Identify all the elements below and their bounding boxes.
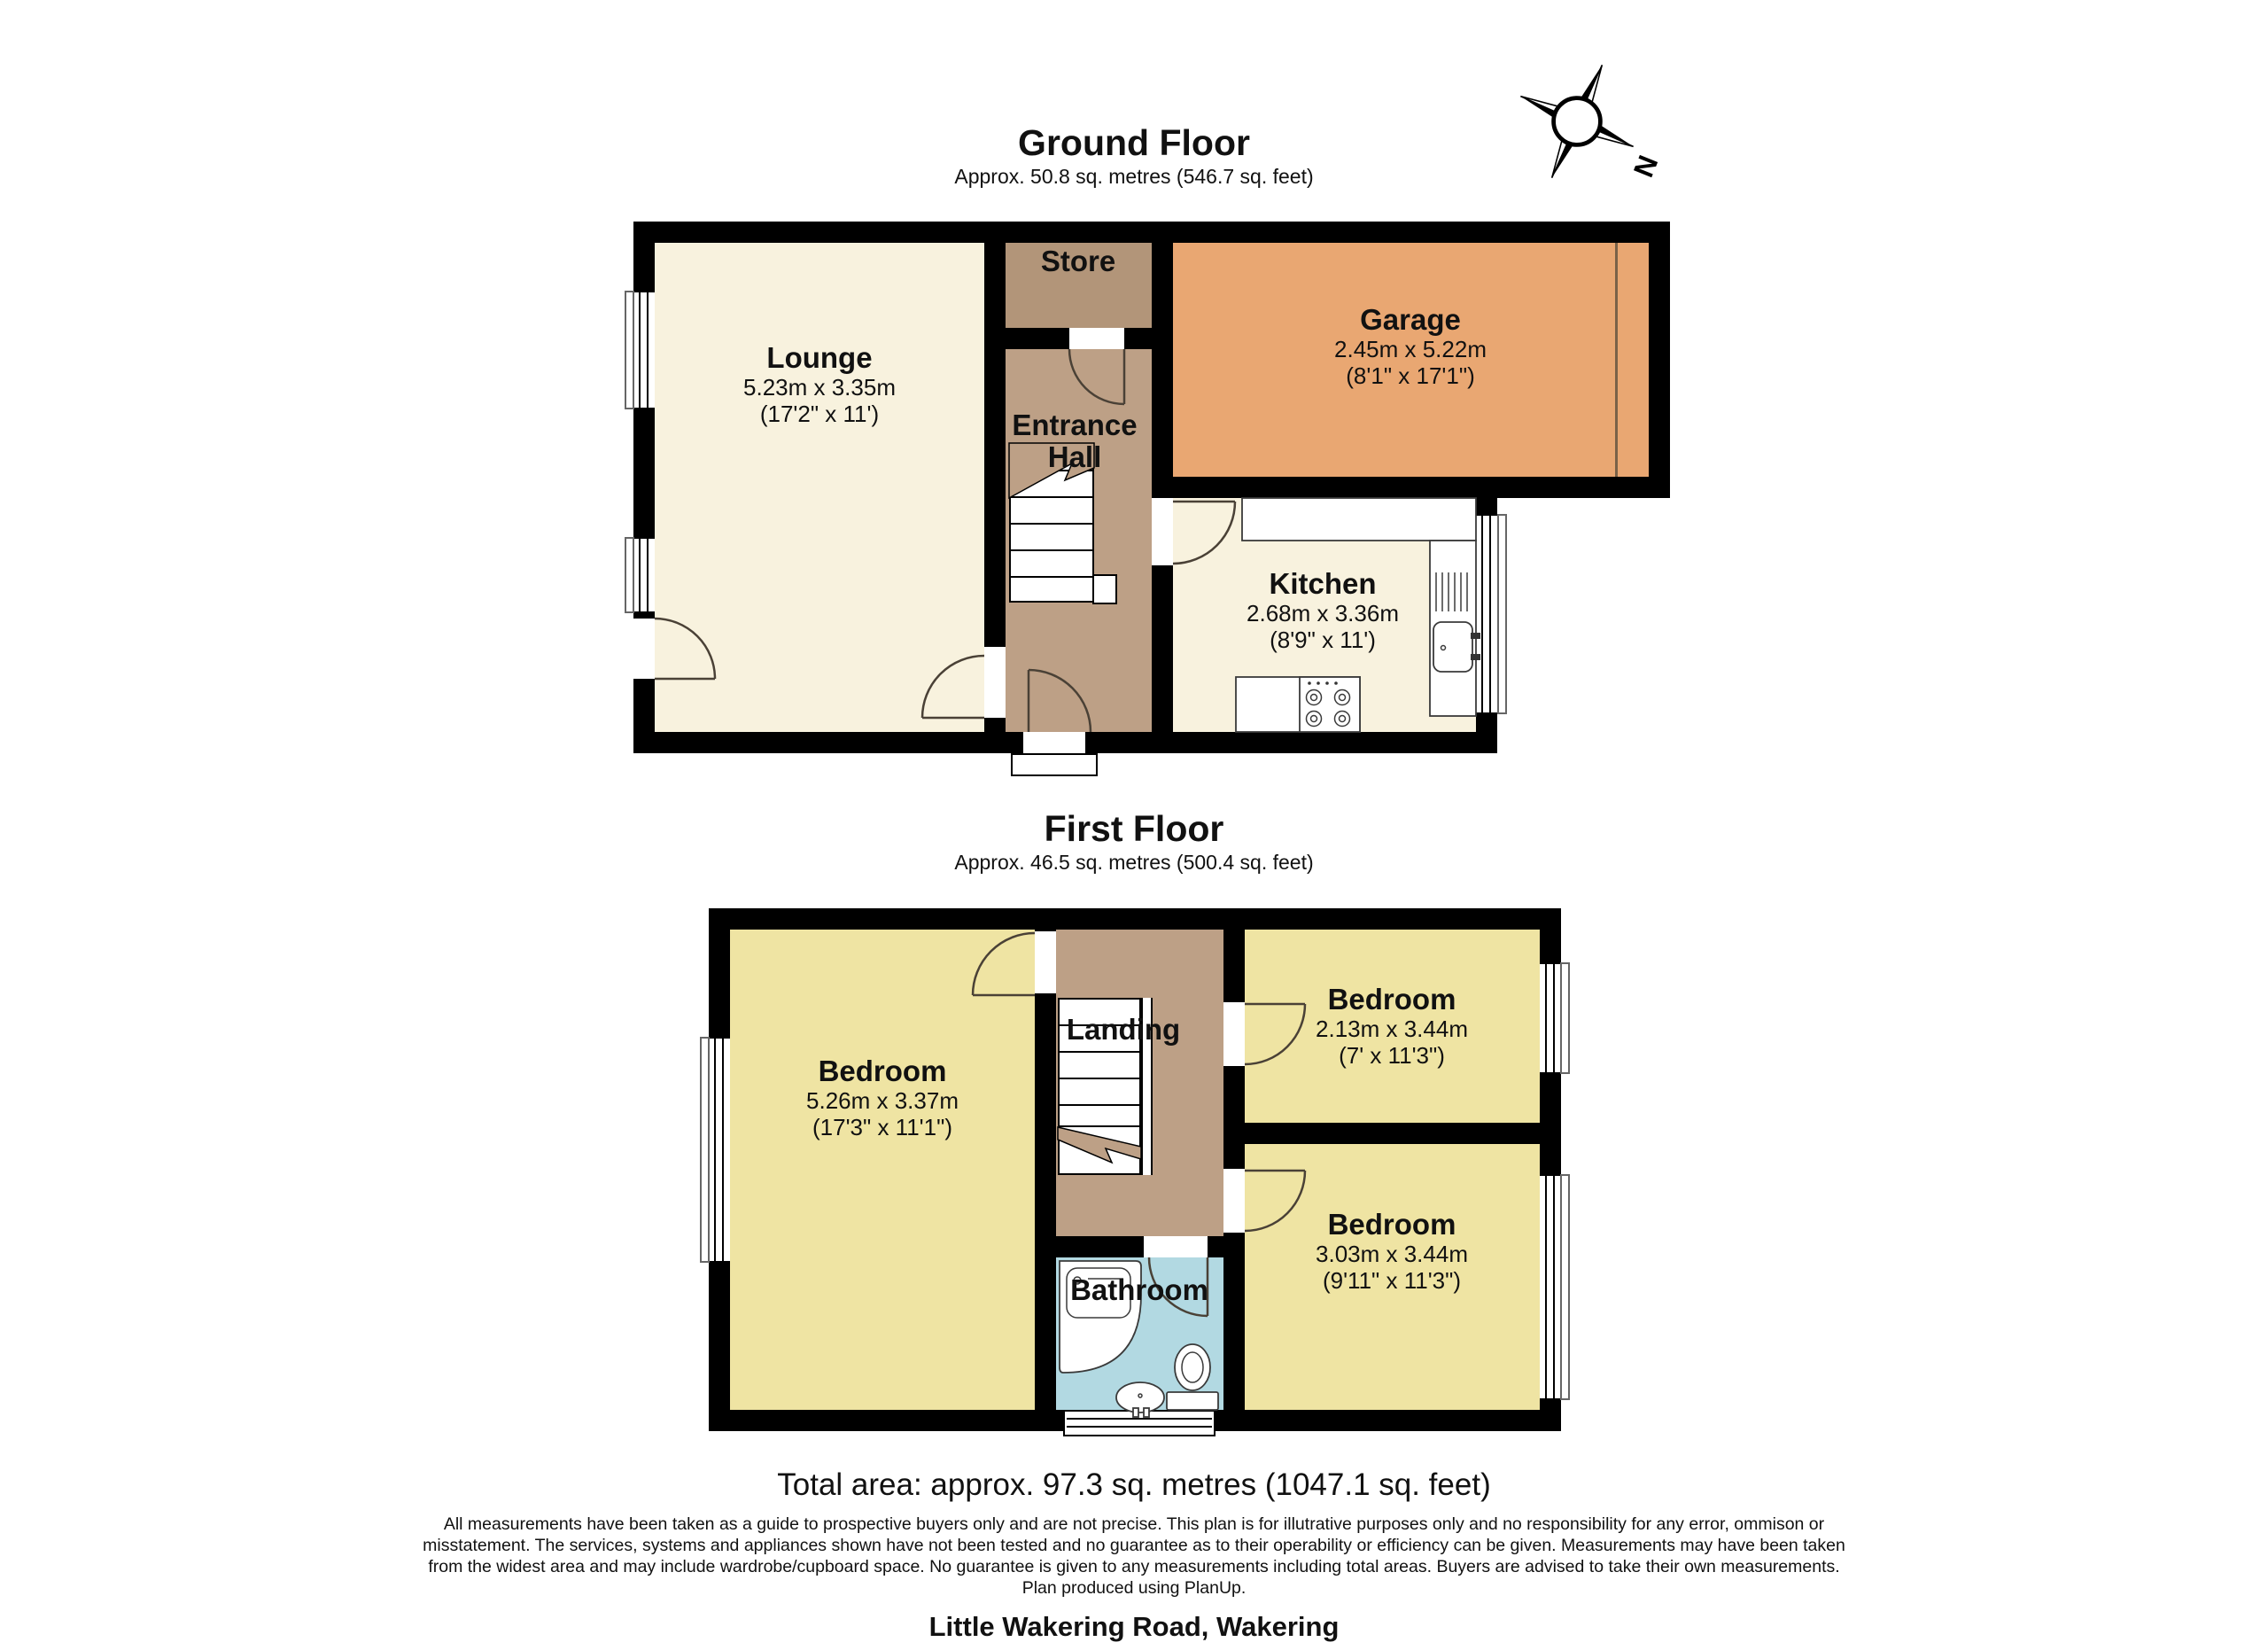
bedroom-top-right-door-arc	[1245, 1004, 1305, 1064]
compass-circle	[1554, 98, 1601, 145]
gf-overlay	[633, 222, 1670, 753]
kitchen-sink	[1433, 622, 1472, 672]
kitchen-dims-imperial: (8'9" x 11')	[1247, 627, 1399, 653]
bedroom-top-right-window-sill	[1560, 962, 1570, 1074]
lounge-name: Lounge	[743, 341, 896, 374]
bedroom-left-door-arc	[973, 933, 1035, 995]
bedroom-top-right-dims-metric: 2.13m x 3.44m	[1316, 1016, 1468, 1042]
garage-dims-imperial: (8'1" x 17'1")	[1334, 362, 1487, 389]
bedroom-top-right-name: Bedroom	[1316, 983, 1468, 1016]
ground-floor-subtitle: Approx. 50.8 sq. metres (546.7 sq. feet)	[954, 165, 1313, 189]
first-floor-title: First Floor	[1045, 808, 1224, 850]
bathroom-label: Bathroom	[1070, 1273, 1208, 1306]
store-name: Store	[1041, 245, 1115, 277]
disclaimer-line-4: Plan produced using PlanUp.	[0, 1577, 2268, 1599]
lounge-label: Lounge 5.23m x 3.35m (17'2" x 11')	[743, 341, 896, 427]
bedroom-bottom-right-label: Bedroom 3.03m x 3.44m (9'11" x 11'3")	[1316, 1208, 1468, 1294]
toilet-cistern	[1167, 1392, 1218, 1410]
first-floor-subtitle: Approx. 46.5 sq. metres (500.4 sq. feet)	[954, 851, 1313, 875]
compass-rose: N	[1493, 37, 1661, 206]
bedroom-bottom-right-window-sill	[1560, 1174, 1570, 1400]
bedroom-bottom-right-name: Bedroom	[1316, 1208, 1468, 1241]
lounge-exterior-door-arc	[655, 619, 715, 679]
kitchen-tap-2	[1471, 654, 1480, 660]
store-door-arc	[1069, 349, 1124, 404]
lounge-dims-metric: 5.23m x 3.35m	[743, 374, 896, 401]
disclaimer-line-3: from the widest area and may include war…	[0, 1556, 2268, 1577]
bedroom-left-label: Bedroom 5.26m x 3.37m (17'3" x 11'1")	[806, 1055, 959, 1140]
kitchen-counter-top	[1242, 498, 1476, 541]
bedroom-left-dims-metric: 5.26m x 3.37m	[806, 1087, 959, 1114]
garage-dims-metric: 2.45m x 5.22m	[1334, 336, 1487, 362]
store-label: Store	[1041, 245, 1115, 277]
kitchen-tap-1	[1471, 633, 1480, 639]
floorplan-page: Ground Floor Approx. 50.8 sq. metres (54…	[0, 0, 2268, 1650]
compass-north-label: N	[1627, 151, 1661, 182]
bedroom-left-dims-imperial: (17'3" x 11'1")	[806, 1114, 959, 1140]
kitchen-dims-metric: 2.68m x 3.36m	[1247, 600, 1399, 627]
kitchen-name: Kitchen	[1247, 567, 1399, 600]
garage-label: Garage 2.45m x 5.22m (8'1" x 17'1")	[1334, 303, 1487, 389]
address-title: Little Wakering Road, Wakering	[929, 1611, 1340, 1643]
bedroom-bottom-right-door-arc	[1245, 1171, 1305, 1231]
entrance-hall-label: Entrance Hall	[1012, 409, 1137, 473]
front-door-step	[1011, 753, 1098, 776]
bedroom-top-right-dims-imperial: (7' x 11'3")	[1316, 1042, 1468, 1069]
entrance-hall-name-line2: Hall	[1012, 441, 1137, 473]
ff-stairs-break	[1058, 1127, 1141, 1163]
entrance-hall-name-line1: Entrance	[1012, 409, 1137, 441]
landing-name: Landing	[1067, 1013, 1180, 1046]
bedroom-top-right-label: Bedroom 2.13m x 3.44m (7' x 11'3")	[1316, 983, 1468, 1069]
first-floor-plan: Bedroom 5.26m x 3.37m (17'3" x 11'1") La…	[709, 908, 1561, 1431]
bedroom-left-name: Bedroom	[806, 1055, 959, 1087]
ground-floor-plan: Lounge 5.23m x 3.35m (17'2" x 11') Store…	[633, 222, 1670, 753]
disclaimer-line-1: All measurements have been taken as a gu…	[0, 1514, 2268, 1535]
garage-name: Garage	[1334, 303, 1487, 336]
lounge-dims-imperial: (17'2" x 11')	[743, 401, 896, 427]
bedroom-bottom-right-dims-metric: 3.03m x 3.44m	[1316, 1241, 1468, 1267]
kitchen-label: Kitchen 2.68m x 3.36m (8'9" x 11')	[1247, 567, 1399, 653]
landing-label: Landing	[1067, 1013, 1180, 1046]
front-door-arc	[1029, 670, 1091, 732]
bathroom-sink-tap-1	[1133, 1408, 1138, 1417]
bathroom-name: Bathroom	[1070, 1273, 1208, 1306]
bathroom-sink-tap-2	[1144, 1408, 1149, 1417]
total-area-text: Total area: approx. 97.3 sq. metres (104…	[777, 1467, 1490, 1503]
toilet-bowl	[1175, 1344, 1210, 1390]
lounge-door-arc	[922, 656, 984, 718]
bedroom-bottom-right-dims-imperial: (9'11" x 11'3")	[1316, 1267, 1468, 1294]
disclaimer-line-2: misstatement. The services, systems and …	[0, 1535, 2268, 1556]
ground-floor-title: Ground Floor	[1018, 122, 1250, 164]
kitchen-door-arc	[1173, 502, 1235, 564]
